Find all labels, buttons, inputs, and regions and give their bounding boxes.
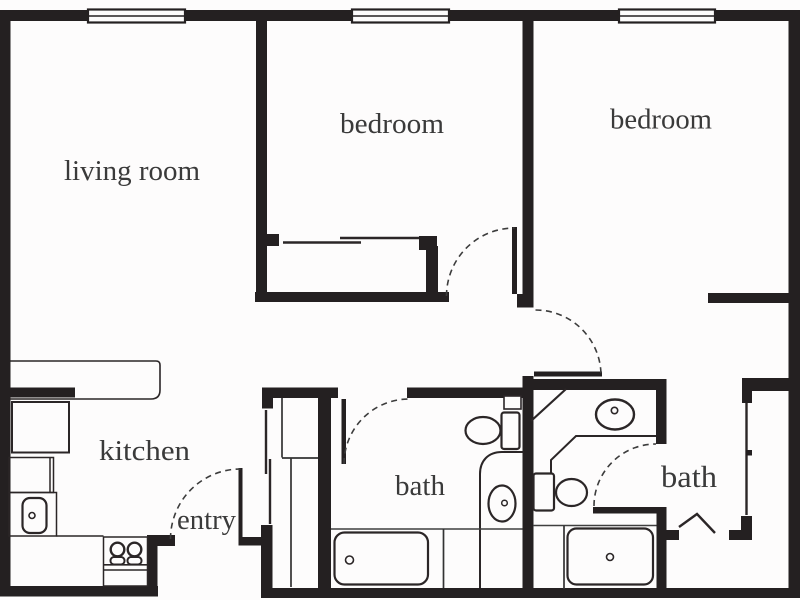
svg-text:bath: bath [661,459,718,494]
svg-text:entry: entry [177,505,236,536]
svg-text:bedroom: bedroom [610,104,712,136]
svg-text:kitchen: kitchen [99,436,190,467]
svg-text:bath: bath [395,471,445,502]
svg-text:bedroom: bedroom [340,108,444,140]
svg-text:living room: living room [64,155,200,187]
